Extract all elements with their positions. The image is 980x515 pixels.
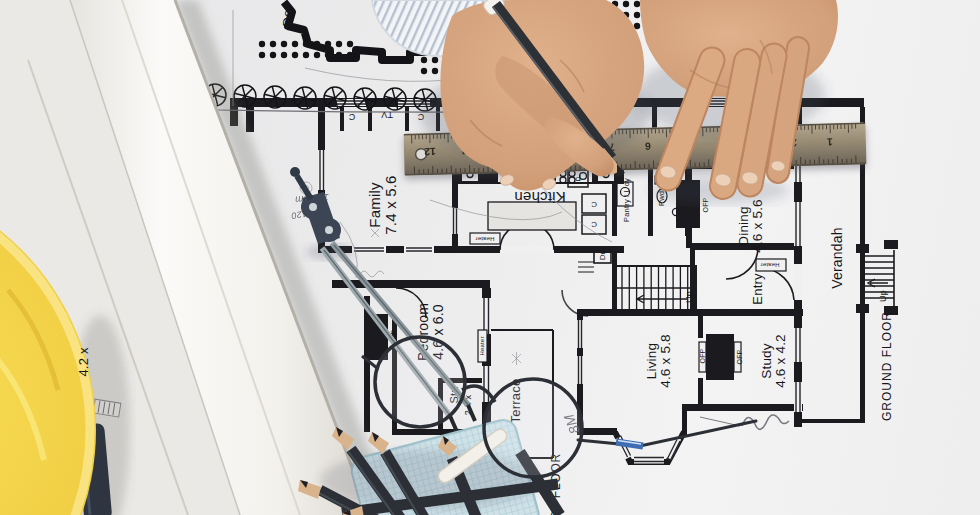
pencil-lead-tip [617,164,625,176]
hands-layer [0,0,980,515]
blueprint-photo: Family 7.4 x 5.6 Kitchen Dining 4.6 x 5.… [0,0,980,515]
